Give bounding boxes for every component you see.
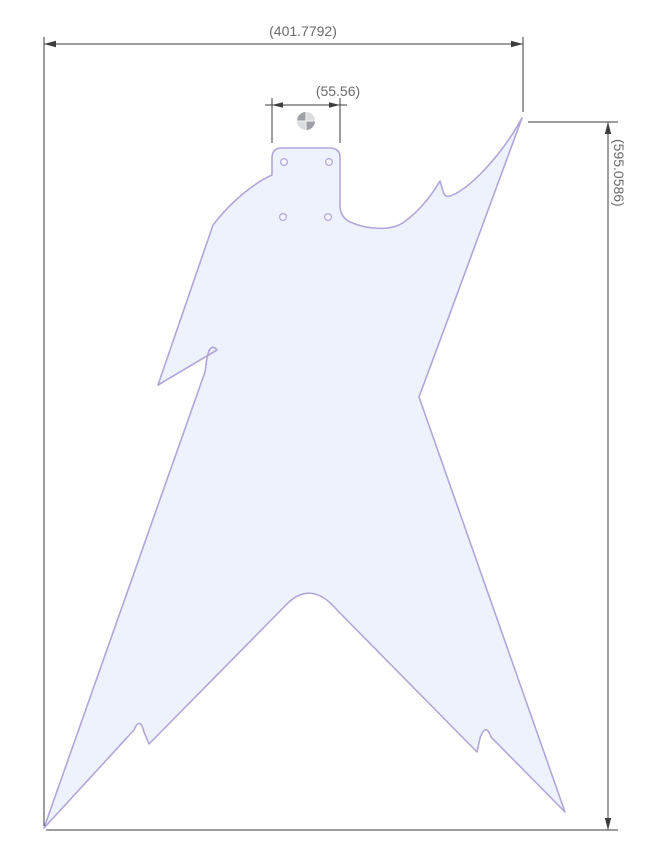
dimension-label-overall-height: (595.0586) xyxy=(611,139,627,207)
arrowhead-top xyxy=(605,122,611,134)
dimension-neck-width: (55.56) xyxy=(265,83,360,143)
guitar-body-outline[interactable] xyxy=(44,118,565,828)
arrowhead-bottom xyxy=(605,818,611,830)
arrowhead-right xyxy=(329,102,340,108)
arrowhead-left xyxy=(272,102,283,108)
drawing-canvas[interactable]: (401.7792) (55.56) (595.0586) xyxy=(0,0,663,850)
dimension-label-neck-width: (55.56) xyxy=(316,83,360,99)
arrowhead-left xyxy=(44,41,56,47)
cad-drawing-view: (401.7792) (55.56) (595.0586) xyxy=(0,0,663,850)
arrowhead-right xyxy=(511,41,523,47)
center-of-mass-icon xyxy=(297,112,315,130)
dimension-label-overall-width: (401.7792) xyxy=(269,23,337,39)
